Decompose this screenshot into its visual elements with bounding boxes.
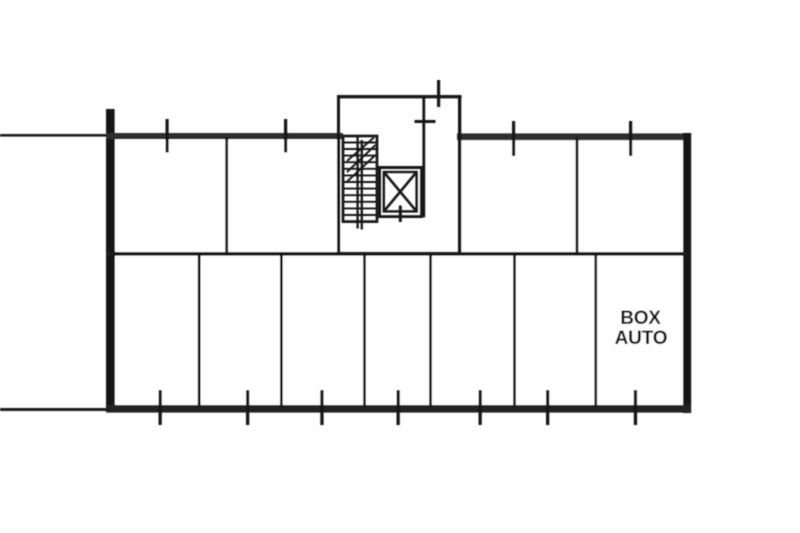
svg-text:BOX: BOX xyxy=(620,308,661,329)
svg-text:AUTO: AUTO xyxy=(615,328,668,349)
